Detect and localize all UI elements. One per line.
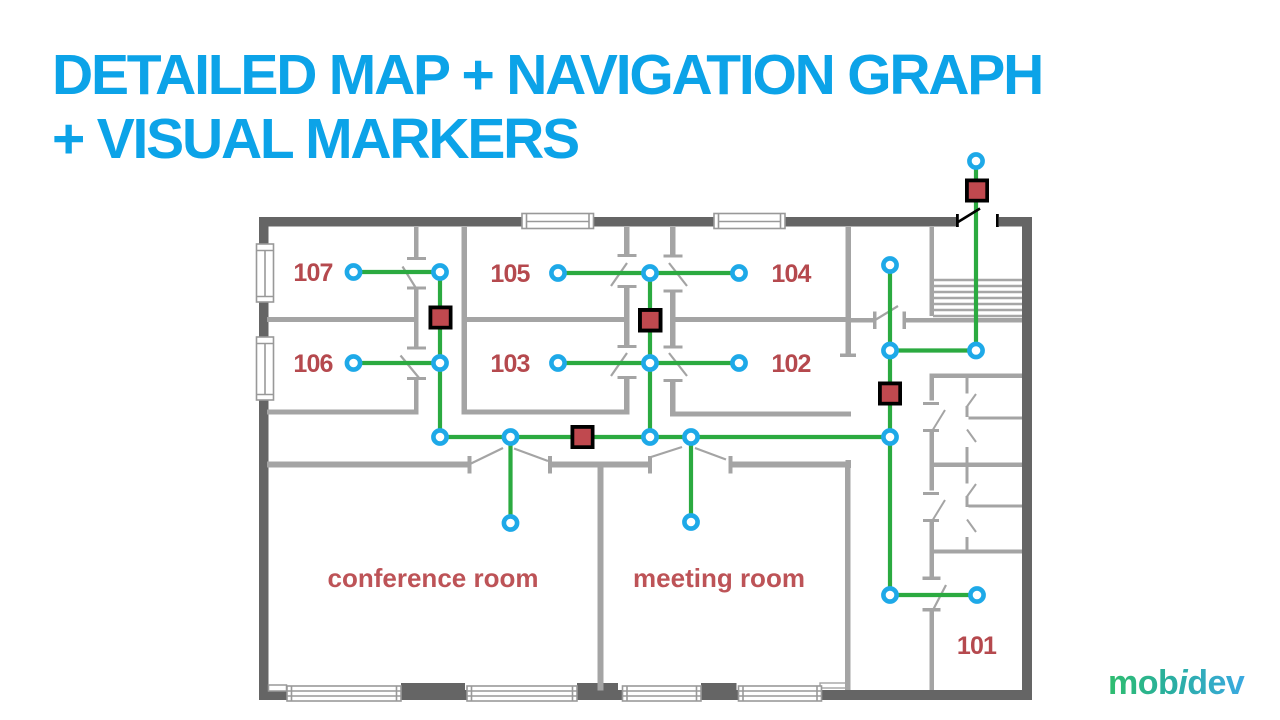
svg-text:104: 104 bbox=[771, 260, 811, 288]
svg-text:103: 103 bbox=[490, 350, 529, 378]
svg-text:107: 107 bbox=[293, 259, 332, 287]
svg-text:102: 102 bbox=[771, 350, 810, 378]
svg-text:conference room: conference room bbox=[328, 563, 539, 593]
svg-text:105: 105 bbox=[490, 260, 530, 288]
svg-text:106: 106 bbox=[293, 350, 332, 378]
svg-text:mobidev: mobidev bbox=[1108, 664, 1245, 702]
svg-text:meeting room: meeting room bbox=[633, 563, 805, 593]
svg-text:101: 101 bbox=[957, 632, 997, 660]
